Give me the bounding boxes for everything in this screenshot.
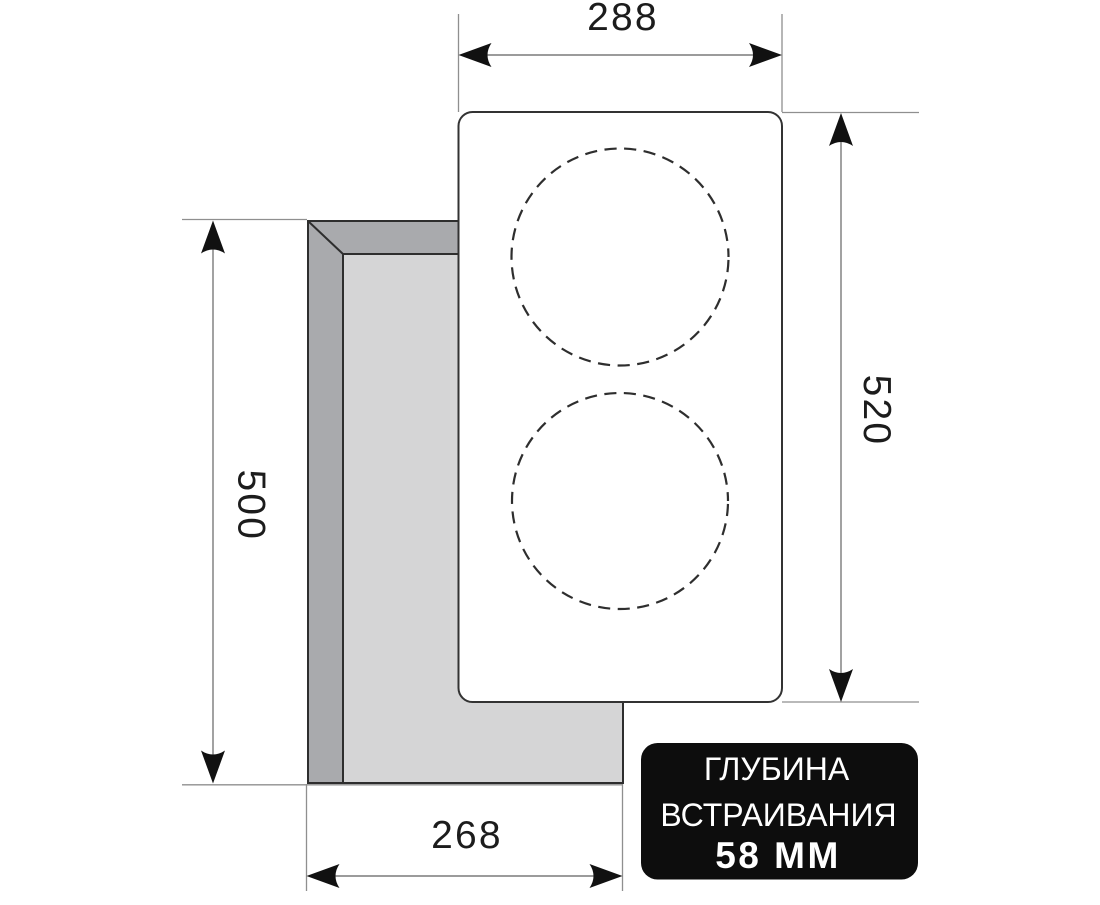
svg-text:268: 268 — [431, 814, 503, 857]
svg-text:520: 520 — [855, 375, 898, 447]
svg-text:ГЛУБИНА: ГЛУБИНА — [704, 751, 850, 787]
svg-text:500: 500 — [230, 469, 273, 541]
svg-text:58 ММ: 58 ММ — [715, 835, 841, 876]
svg-text:ВСТРАИВАНИЯ: ВСТРАИВАНИЯ — [660, 797, 896, 833]
svg-text:288: 288 — [587, 0, 659, 39]
